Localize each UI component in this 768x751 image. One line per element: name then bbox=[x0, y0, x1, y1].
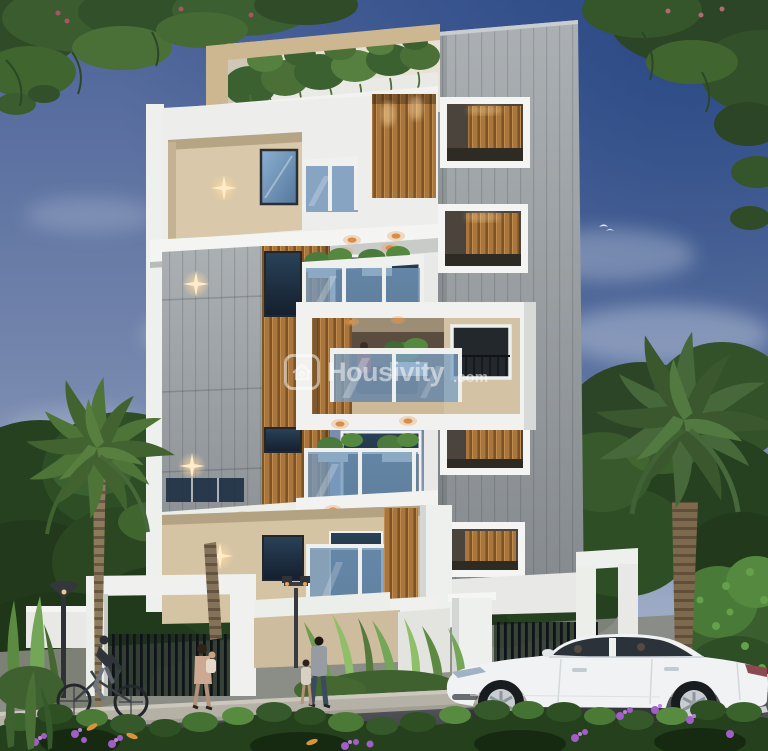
star-wall-light bbox=[182, 270, 210, 298]
tower-window-4 bbox=[441, 522, 525, 577]
scene-render bbox=[0, 0, 768, 751]
projecting-balcony-box bbox=[296, 302, 536, 430]
balcony-box-glass bbox=[330, 348, 462, 402]
window-floor4 bbox=[265, 252, 301, 316]
tower-window-2 bbox=[438, 204, 528, 273]
gray-wall-window-band bbox=[166, 478, 244, 502]
balcony-floor5 bbox=[302, 156, 358, 212]
window-floor2 bbox=[265, 428, 301, 452]
tower-window-1 bbox=[440, 97, 530, 168]
star-wall-light bbox=[210, 174, 238, 202]
star-wall-light bbox=[178, 452, 206, 480]
entrance-wall bbox=[398, 608, 450, 676]
render-canvas: Housivity .com bbox=[0, 0, 768, 751]
wood-panel-floor5 bbox=[372, 94, 436, 198]
window-ground bbox=[263, 536, 303, 580]
wood-screen-ground bbox=[384, 508, 418, 600]
building-left-edge bbox=[146, 104, 164, 612]
